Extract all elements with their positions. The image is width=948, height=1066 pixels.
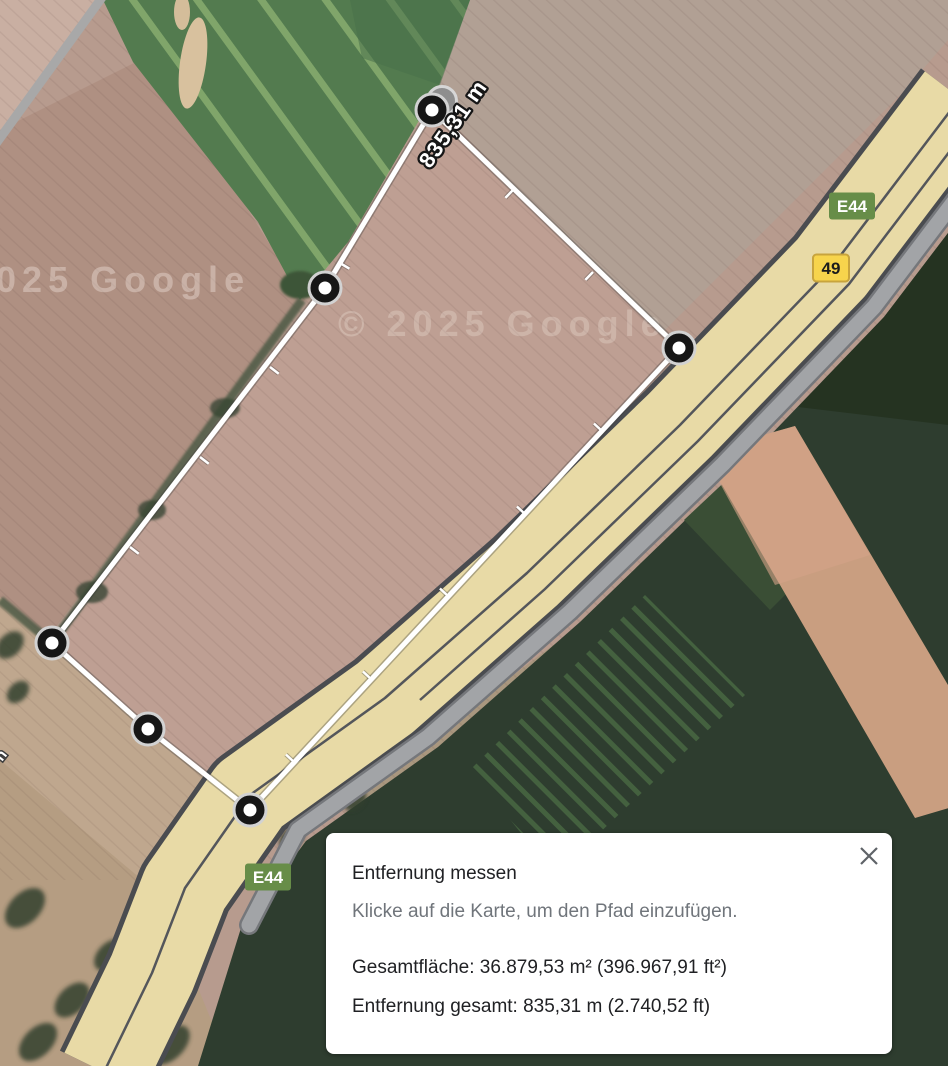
measure-vertex-dot-2 [244,804,257,817]
measure-vertex-dot-1 [673,342,686,355]
measure-vertex-dot-4 [46,637,59,650]
measure-panel: Entfernung messen Klicke auf die Karte, … [326,833,892,1054]
panel-title: Entfernung messen [352,861,866,887]
panel-total-distance: Entfernung gesamt: 835,31 m (2.740,52 ft… [352,994,866,1020]
panel-total-area: Gesamtfläche: 36.879,53 m² (396.967,91 f… [352,955,866,981]
measure-path-shadow [52,110,679,810]
measure-vertex-dot-0 [426,104,439,117]
panel-subtitle: Klicke auf die Karte, um den Pfad einzuf… [352,899,866,925]
close-icon [858,845,880,867]
measure-vertex-dot-3 [142,723,155,736]
maps-measure-screen: 2025 Google © 2025 Google n E44 49 E44 8… [0,0,948,1066]
measure-vertex-dot-5 [319,282,332,295]
close-button[interactable] [854,841,884,871]
